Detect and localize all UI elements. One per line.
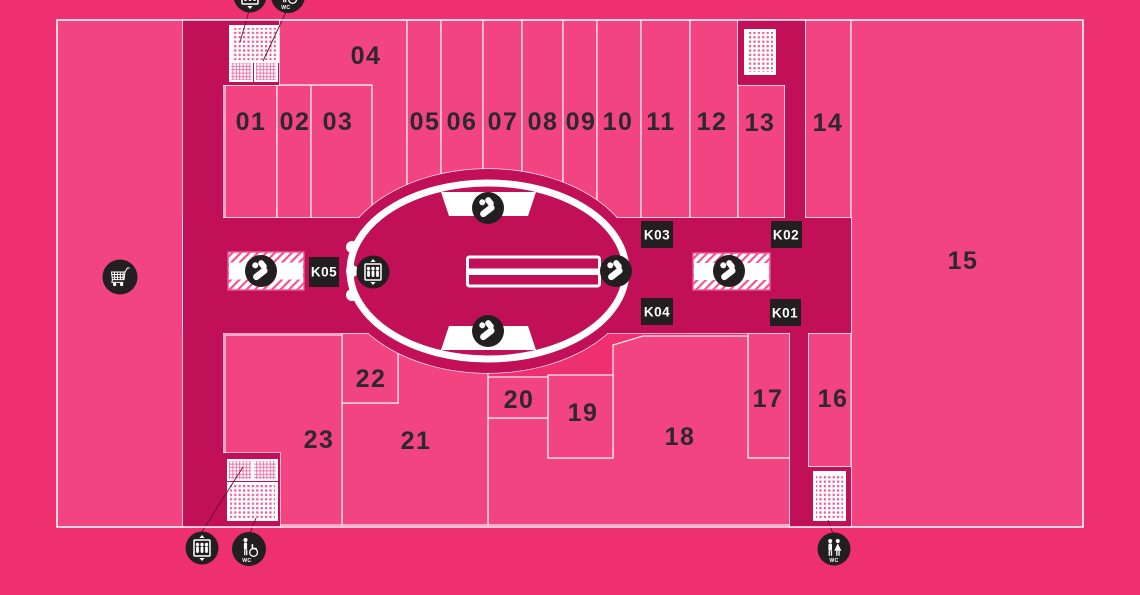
escalator-icon: [472, 192, 504, 224]
unit-label-18: 18: [665, 423, 696, 451]
kiosk-K01[interactable]: K01: [770, 299, 801, 326]
unit-13[interactable]: [738, 85, 785, 218]
unit-label-22: 22: [356, 365, 387, 393]
stairs-box: [747, 32, 773, 72]
escalator-box: [229, 461, 251, 479]
escalator-box: [256, 63, 276, 80]
kiosk-label: K02: [773, 228, 799, 243]
unit-label-20: 20: [504, 386, 535, 414]
unit-01[interactable]: [225, 85, 277, 218]
unit-02[interactable]: [277, 85, 311, 218]
unit-label-13: 13: [745, 109, 776, 137]
unit-label-04: 04: [351, 42, 382, 70]
elevator-icon: [357, 256, 390, 289]
floor-plan-map: WC WC: [0, 0, 1140, 595]
kiosk-K05[interactable]: K05: [309, 257, 339, 287]
central-escalator-divider: [467, 269, 600, 276]
unit-label-15: 15: [948, 247, 979, 275]
atrium-scallop: [346, 241, 358, 253]
unit-label-11: 11: [646, 108, 675, 136]
unit-label-19: 19: [568, 399, 599, 427]
escalator-box: [254, 461, 276, 479]
unit-label-09: 09: [566, 108, 597, 136]
stairs-box: [230, 485, 275, 518]
kiosk-label: K05: [311, 265, 337, 280]
escalator-box: [231, 63, 251, 80]
unit-03[interactable]: [311, 85, 372, 218]
unit-label-21: 21: [401, 427, 432, 455]
unit-label-07: 07: [488, 108, 519, 136]
accessible-wc-icon: [232, 532, 266, 566]
kiosk-label: K04: [644, 305, 670, 320]
kiosk-K02[interactable]: K02: [771, 221, 802, 248]
mall-floor-plan: WC WC: [0, 0, 1140, 595]
atrium-scallop: [346, 289, 358, 301]
unit-label-02: 02: [280, 108, 311, 136]
stairs-box: [816, 474, 843, 518]
escalator-icon: [713, 255, 745, 287]
unit-label-17: 17: [753, 385, 784, 413]
kiosk-label: K01: [772, 306, 798, 321]
escalator-icon: [472, 315, 504, 347]
unit-label-06: 06: [447, 108, 478, 136]
kiosk-label: K03: [644, 228, 670, 243]
unit-label-03: 03: [323, 108, 354, 136]
unit-label-08: 08: [528, 108, 559, 136]
wc-icon: [818, 533, 851, 566]
escalator-icon: [600, 255, 632, 287]
unit-label-12: 12: [697, 108, 728, 136]
atrium-scallop: [346, 265, 358, 277]
unit-label-16: 16: [818, 385, 849, 413]
escalator-icon: [245, 255, 277, 287]
stairs-box: [232, 28, 276, 60]
unit-label-05: 05: [410, 108, 441, 136]
shopping-cart-icon: [103, 260, 138, 295]
unit-label-10: 10: [603, 108, 634, 136]
unit-label-23: 23: [304, 426, 335, 454]
unit-label-01: 01: [236, 108, 267, 136]
elevator-icon: [186, 532, 219, 565]
unit-label-14: 14: [813, 109, 844, 137]
kiosk-K04[interactable]: K04: [641, 298, 673, 325]
kiosk-K03[interactable]: K03: [641, 221, 673, 248]
